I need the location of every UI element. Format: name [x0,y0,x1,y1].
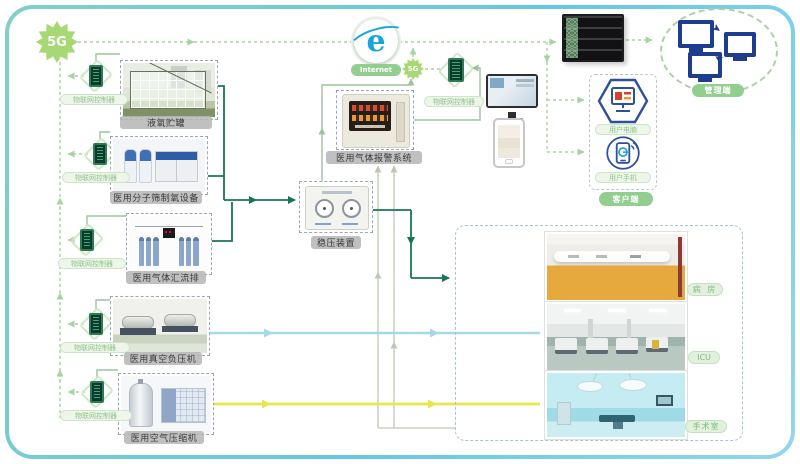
network-computer-icon [724,32,756,57]
icu-photo [544,301,688,373]
oxygen-plant-photo [110,136,208,195]
network-computer-icon [678,20,714,48]
iot-gateway-icon [443,55,469,85]
iot-controller-icon [85,378,109,406]
iot-controller-label: 物联网控制器 [60,342,130,353]
5g-icon: 5G [36,21,78,63]
icu-label: ICU [688,351,720,364]
monitor-phone-icon [493,118,525,168]
user-phone-label: 用户手机 [595,172,651,183]
internet-icon: e [354,19,398,63]
internet-label: Internet [351,64,401,76]
management-side-label: 管理端 [692,84,744,97]
client-side-label: 客户端 [599,192,653,206]
iot-controller-icon [84,310,108,338]
iot-controller-label: 物联网控制器 [58,258,126,269]
iot-controller-icon [88,140,112,168]
ward-label: 病 房 [687,283,723,296]
iot-controller-icon [84,62,108,90]
diagram-canvas: 5G e Internet 5G 物联网控制器 ➤ ➤ 管理端 [0,0,800,464]
user-pc-alarm-icon [597,78,649,124]
vacuum-pump-label: 医用真空负压机 [124,352,202,365]
operating-room-photo [544,370,688,440]
iot-controller-label: 物联网控制器 [62,172,130,183]
gas-manifold-photo [126,213,212,275]
oxygen-plant-label: 医用分子筛制氧设备 [110,191,202,204]
liquid-oxygen-label: 液氧贮罐 [120,116,212,129]
air-compressor-label: 医用空气压缩机 [124,431,204,444]
monitor-pc-icon [486,74,538,108]
iot-controller-label: 物联网控制器 [60,94,128,105]
5g-label: 5G [47,35,67,50]
5g-small-label: 5G [408,65,419,73]
server-rack-icon [562,14,624,62]
ward-photo [544,231,688,303]
air-compressor-photo [118,373,214,435]
iot-controller-label: 物联网控制器 [60,410,132,421]
stabilizer-label: 稳压装置 [311,236,361,249]
alarm-system-label: 医用气体报警系统 [326,151,422,164]
user-phone-icon [605,135,641,171]
liquid-oxygen-photo [120,60,218,120]
pressure-stabilizer-icon [305,186,369,230]
iot-controller-icon [75,226,99,254]
user-pc-label: 用户电脑 [595,124,651,135]
operating-room-label: 手术室 [685,420,727,433]
gas-alarm-panel-icon [342,94,410,148]
iot-gateway-label: 物联网控制器 [424,96,484,107]
gas-manifold-label: 医用气体汇流排 [126,271,206,284]
5g-small-icon: 5G [402,58,424,80]
